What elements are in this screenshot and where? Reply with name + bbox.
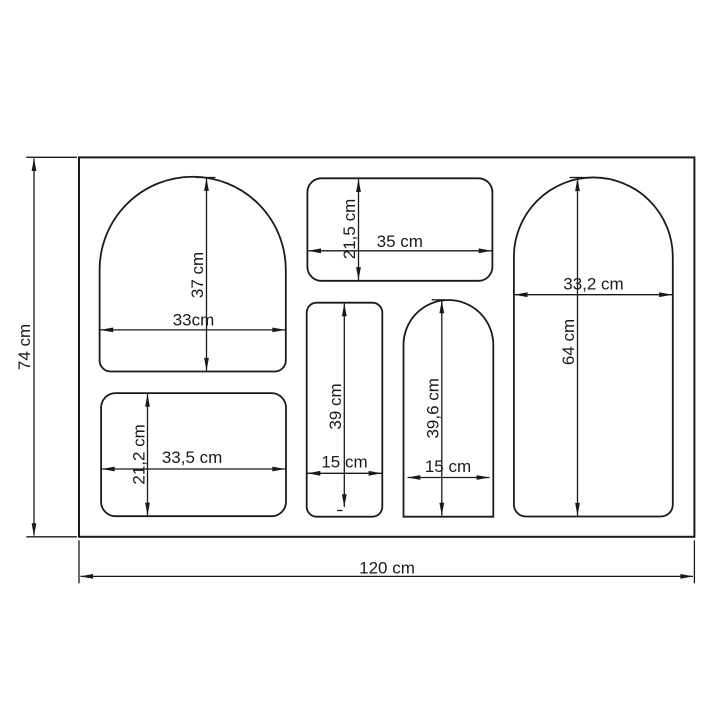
svg-text:15 cm: 15 cm <box>321 453 367 472</box>
svg-text:39 cm: 39 cm <box>326 383 345 429</box>
svg-text:33,2 cm: 33,2 cm <box>563 274 623 293</box>
svg-text:15 cm: 15 cm <box>425 457 471 476</box>
svg-text:39,6 cm: 39,6 cm <box>424 378 443 438</box>
svg-text:37 cm: 37 cm <box>188 252 207 298</box>
svg-text:33cm: 33cm <box>173 310 215 329</box>
svg-text:120 cm: 120 cm <box>359 559 415 578</box>
svg-text:64 cm: 64 cm <box>559 319 578 365</box>
svg-text:35 cm: 35 cm <box>377 232 423 251</box>
svg-text:33,5 cm: 33,5 cm <box>162 448 222 467</box>
svg-text:21,2 cm: 21,2 cm <box>129 424 148 484</box>
svg-text:74 cm: 74 cm <box>15 324 34 370</box>
